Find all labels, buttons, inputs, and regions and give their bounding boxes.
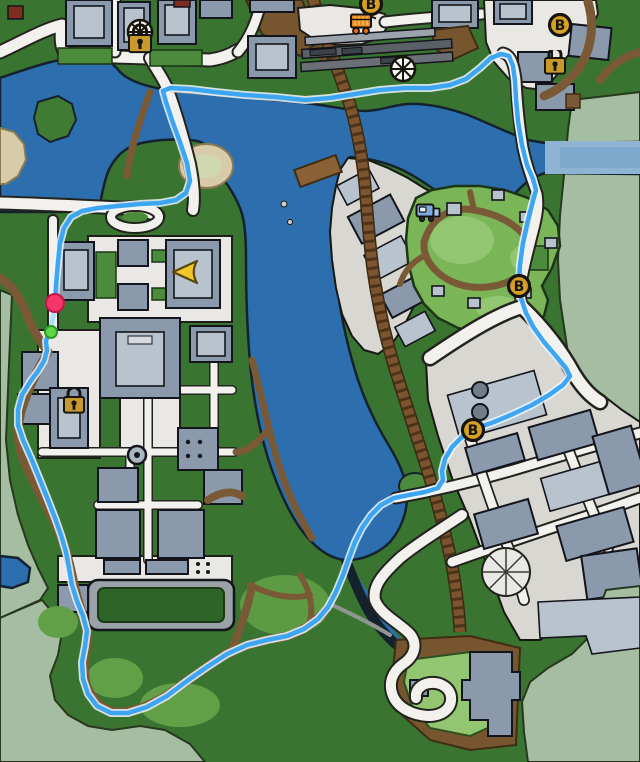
- svg-text:B: B: [468, 423, 479, 439]
- store-b-icon[interactable]: B: [460, 417, 487, 444]
- svg-text:B: B: [555, 18, 566, 34]
- locked-venue-icon[interactable]: [121, 18, 159, 58]
- map-markers: BBBB: [0, 0, 640, 762]
- player-arrow-icon[interactable]: [169, 258, 201, 286]
- svg-text:B: B: [514, 279, 525, 295]
- store-b-icon[interactable]: B: [506, 273, 533, 300]
- lock-icon[interactable]: [61, 389, 87, 417]
- truck-icon[interactable]: [414, 201, 442, 224]
- store-b-icon[interactable]: B: [547, 12, 574, 39]
- waypoint-dot-icon[interactable]: [43, 324, 60, 341]
- route-start-icon[interactable]: [43, 291, 67, 315]
- ferris-wheel-icon[interactable]: [388, 54, 418, 84]
- lock-icon[interactable]: [542, 50, 568, 78]
- game-world-map[interactable]: BBBB: [0, 0, 640, 762]
- food-cart-icon[interactable]: [348, 10, 378, 37]
